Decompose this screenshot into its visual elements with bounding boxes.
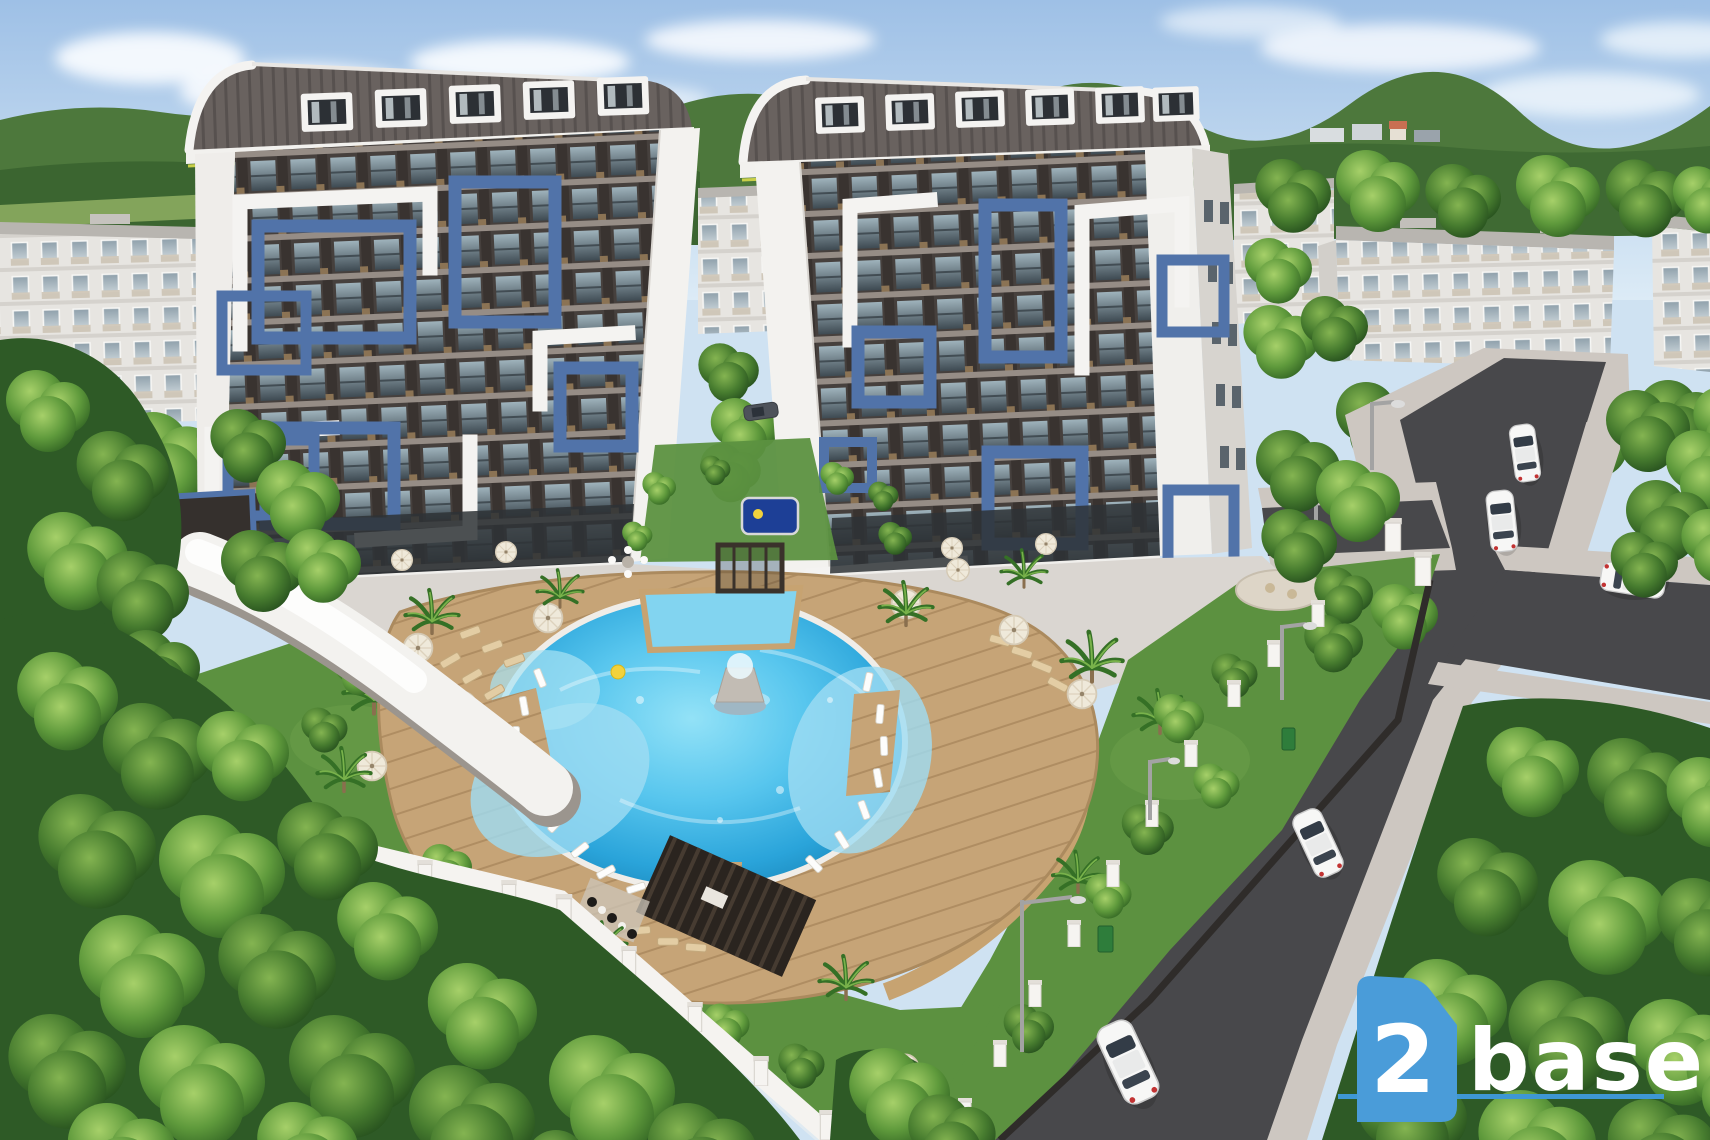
logo-word: base [1468, 1011, 1705, 1111]
logo-number: 2 [1370, 1006, 1435, 1115]
rendering-canvas: 2 base [0, 0, 1710, 1140]
scene-rendering: 2 base [0, 0, 1710, 1140]
spa-platform [642, 588, 800, 650]
trash-bin [1098, 926, 1113, 952]
background-building-right-a [1318, 218, 1614, 368]
gate-pillar [1384, 518, 1402, 552]
background-building-right-b [1652, 214, 1710, 372]
yellow-float [611, 665, 625, 679]
gazebo-frame [718, 545, 782, 591]
trash-bin [1282, 728, 1295, 750]
courtyard-kids-pool [742, 498, 798, 534]
pool-float [753, 509, 763, 519]
gate-pillar [1414, 552, 1432, 586]
